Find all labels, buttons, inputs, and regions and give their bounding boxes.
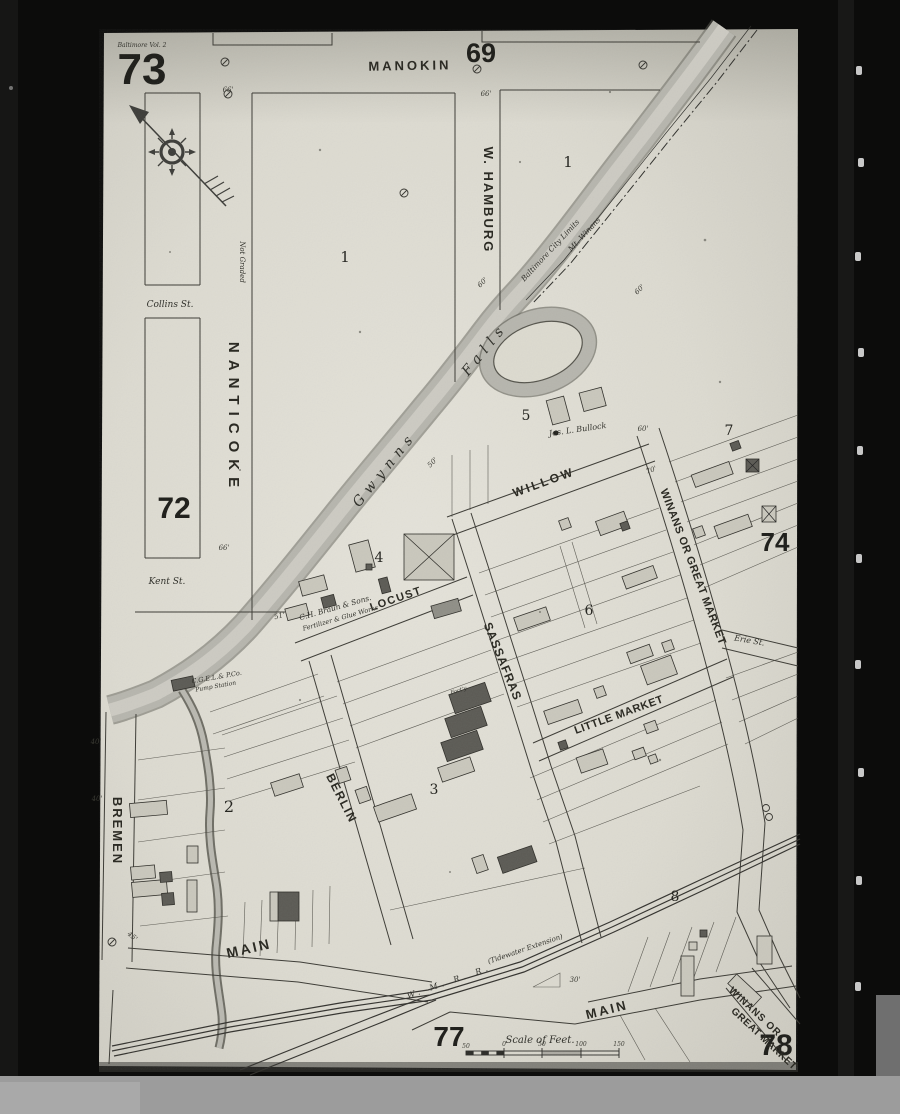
map-canvas: Scale of Feet. 50 0 50 100 150 Baltimore… xyxy=(0,0,900,1114)
scanned-sanborn-map: Scale of Feet. 50 0 50 100 150 Baltimore… xyxy=(0,0,900,1114)
film-speck xyxy=(9,86,13,90)
dim-label: 40' xyxy=(90,738,102,746)
scanbed-bottom-left xyxy=(0,1082,140,1114)
film-right-streak xyxy=(838,0,854,1114)
paper-grain xyxy=(99,29,798,1070)
film-left-strip xyxy=(0,0,18,1114)
